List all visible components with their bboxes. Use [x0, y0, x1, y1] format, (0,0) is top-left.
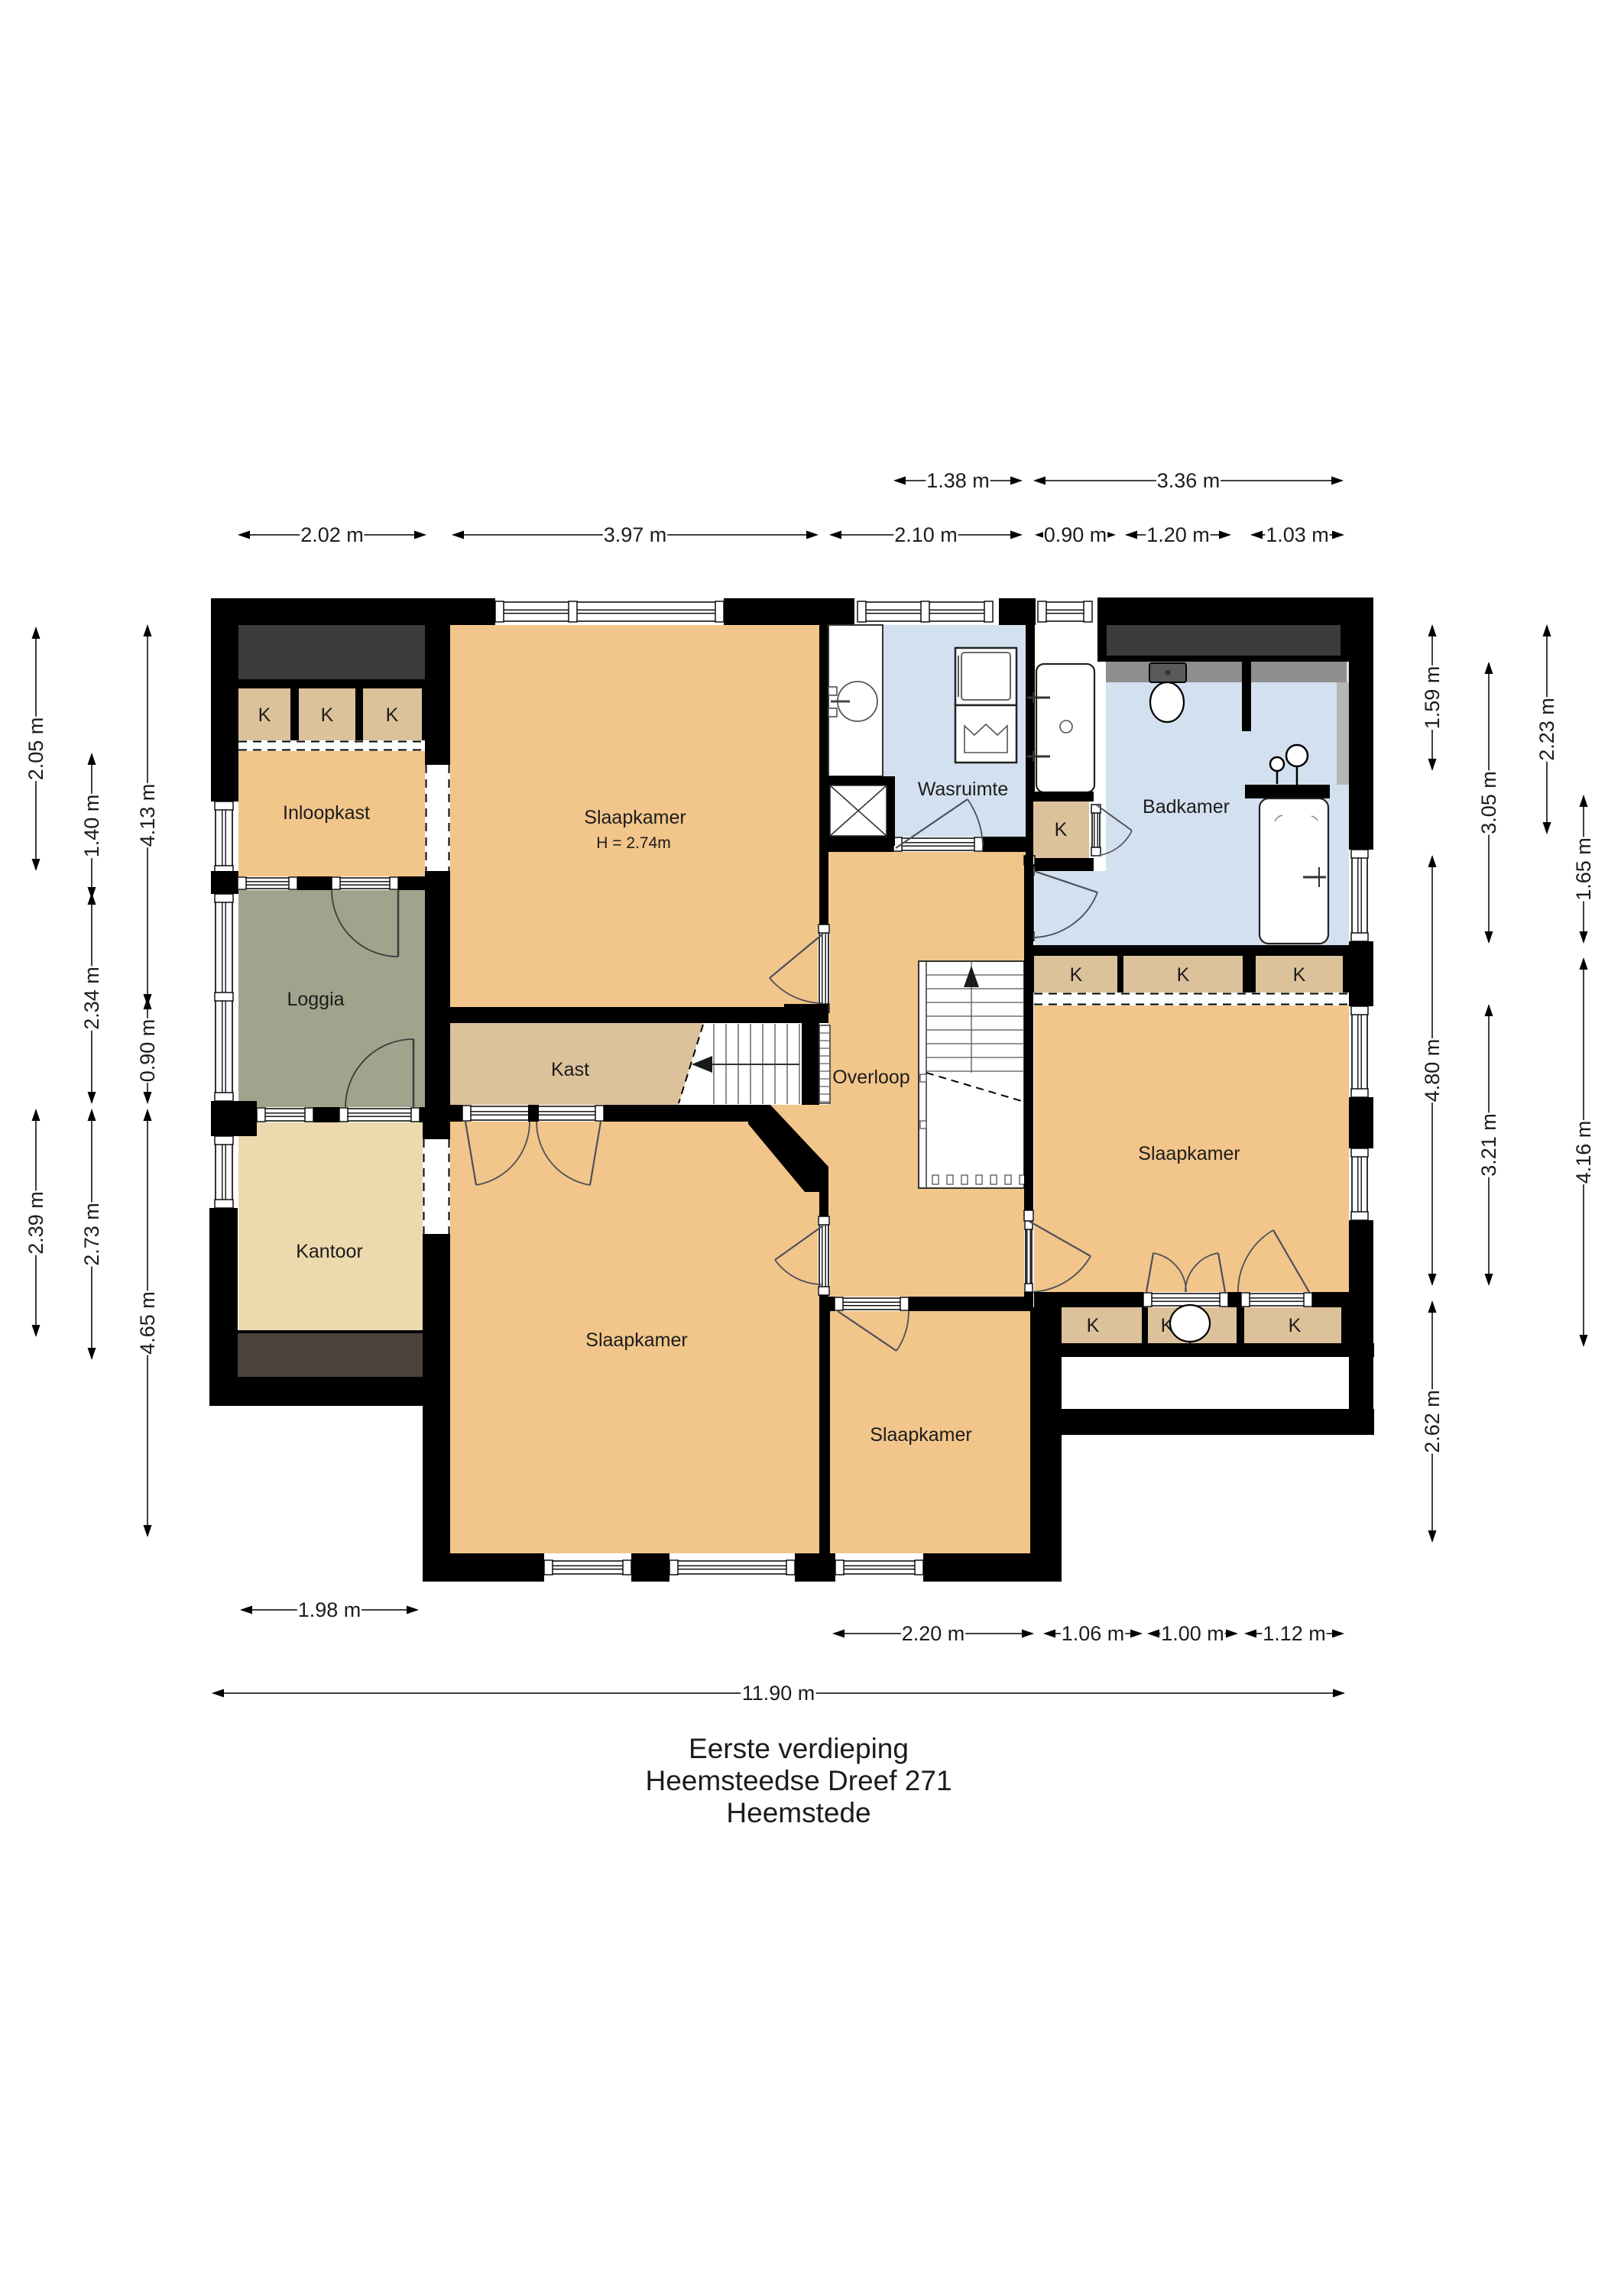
- svg-text:2.02 m: 2.02 m: [300, 523, 364, 546]
- svg-text:1.03 m: 1.03 m: [1266, 523, 1329, 546]
- svg-text:K: K: [1289, 1315, 1302, 1336]
- svg-text:1.40 m: 1.40 m: [80, 795, 103, 858]
- svg-text:4.13 m: 4.13 m: [136, 784, 159, 847]
- svg-text:11.90 m: 11.90 m: [742, 1682, 815, 1705]
- svg-text:Heemstede: Heemstede: [726, 1797, 870, 1828]
- svg-text:K: K: [1070, 964, 1083, 986]
- svg-text:2.23 m: 2.23 m: [1535, 698, 1558, 761]
- svg-text:K: K: [258, 704, 271, 726]
- svg-text:Kantoor: Kantoor: [296, 1241, 363, 1262]
- svg-text:2.10 m: 2.10 m: [894, 523, 958, 546]
- svg-text:2.34 m: 2.34 m: [80, 967, 103, 1030]
- svg-text:2.73 m: 2.73 m: [80, 1203, 103, 1266]
- svg-text:1.38 m: 1.38 m: [926, 469, 990, 492]
- svg-text:1.20 m: 1.20 m: [1146, 523, 1210, 546]
- svg-text:Slaapkamer: Slaapkamer: [1138, 1143, 1240, 1164]
- svg-text:K: K: [1161, 1315, 1174, 1336]
- svg-text:2.39 m: 2.39 m: [24, 1191, 47, 1255]
- svg-text:1.98 m: 1.98 m: [298, 1598, 361, 1621]
- svg-text:H = 2.74m: H = 2.74m: [596, 834, 670, 852]
- svg-text:4.80 m: 4.80 m: [1421, 1039, 1444, 1103]
- svg-text:1.12 m: 1.12 m: [1263, 1622, 1326, 1645]
- svg-text:Loggia: Loggia: [287, 989, 344, 1010]
- svg-text:3.97 m: 3.97 m: [604, 523, 667, 546]
- svg-text:0.90 m: 0.90 m: [1044, 523, 1107, 546]
- svg-text:1.59 m: 1.59 m: [1421, 666, 1444, 730]
- svg-text:2.05 m: 2.05 m: [24, 717, 47, 781]
- svg-text:Slaapkamer: Slaapkamer: [870, 1424, 971, 1446]
- svg-text:3.05 m: 3.05 m: [1477, 771, 1500, 834]
- svg-text:Eerste verdieping: Eerste verdieping: [689, 1733, 909, 1764]
- svg-text:K: K: [1087, 1315, 1100, 1336]
- svg-text:Badkamer: Badkamer: [1143, 796, 1230, 818]
- svg-text:1.00 m: 1.00 m: [1161, 1622, 1224, 1645]
- svg-text:Wasruimte: Wasruimte: [918, 779, 1009, 800]
- svg-text:1.06 m: 1.06 m: [1062, 1622, 1125, 1645]
- svg-text:K: K: [1055, 819, 1068, 840]
- svg-text:Slaapkamer: Slaapkamer: [585, 1329, 687, 1351]
- svg-text:K: K: [386, 704, 399, 726]
- svg-text:Overloop: Overloop: [832, 1067, 909, 1088]
- svg-text:Kast: Kast: [551, 1059, 589, 1080]
- svg-text:4.16 m: 4.16 m: [1572, 1121, 1595, 1184]
- svg-text:0.90 m: 0.90 m: [136, 1019, 159, 1083]
- svg-text:K: K: [1293, 964, 1306, 986]
- svg-text:K: K: [321, 704, 334, 726]
- svg-text:Inloopkast: Inloopkast: [283, 802, 370, 824]
- svg-text:Heemsteedse Dreef 271: Heemsteedse Dreef 271: [645, 1765, 952, 1796]
- svg-text:1.65 m: 1.65 m: [1572, 837, 1595, 901]
- svg-text:2.20 m: 2.20 m: [902, 1622, 965, 1645]
- svg-text:3.36 m: 3.36 m: [1157, 469, 1221, 492]
- svg-text:K: K: [1177, 964, 1190, 986]
- svg-text:Slaapkamer: Slaapkamer: [584, 807, 686, 828]
- svg-text:2.62 m: 2.62 m: [1421, 1390, 1444, 1453]
- svg-text:4.65 m: 4.65 m: [136, 1291, 159, 1355]
- svg-text:3.21 m: 3.21 m: [1477, 1113, 1500, 1177]
